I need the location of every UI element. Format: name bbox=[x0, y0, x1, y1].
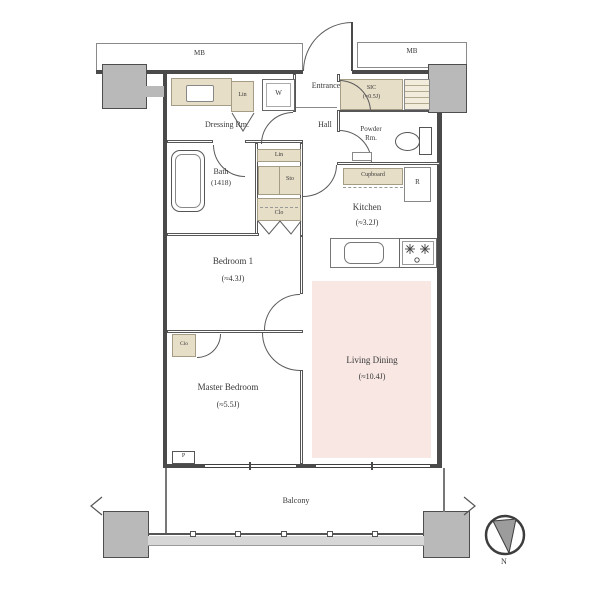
meter-box-right-label: MB bbox=[357, 48, 467, 56]
rail-post-2 bbox=[235, 531, 241, 537]
kitchen-sink bbox=[344, 242, 384, 264]
living-size: (≈10.4J) bbox=[330, 373, 414, 382]
compass-north-label: N bbox=[501, 557, 507, 566]
stove-inner bbox=[402, 241, 434, 265]
pillar-bottom-right bbox=[423, 511, 470, 558]
kitchen-size: (≈3.2J) bbox=[330, 219, 404, 228]
wall-dressing-bottom-a bbox=[167, 140, 213, 143]
powder-label: Powder bbox=[348, 126, 394, 134]
cupboard-dash-line bbox=[343, 187, 403, 188]
balcony-label: Balcony bbox=[264, 497, 328, 506]
toilet-bowl bbox=[395, 132, 420, 151]
closet-fold-door bbox=[258, 221, 301, 234]
vanity-basin bbox=[186, 85, 214, 102]
pillar-bottom-left bbox=[103, 511, 149, 558]
entrance-label: Entrance bbox=[297, 82, 355, 91]
meter-box-left-label: MB bbox=[96, 50, 303, 58]
rail-post-3 bbox=[281, 531, 287, 537]
entrance-door-leaf bbox=[351, 22, 353, 71]
kitchen-door-arc bbox=[303, 165, 337, 197]
balcony-divider-right bbox=[443, 468, 445, 512]
living-label: Living Dining bbox=[330, 356, 414, 366]
kitchen-label: Kitchen bbox=[330, 203, 404, 213]
refrigerator-label: R bbox=[404, 179, 431, 187]
floor-plan: MB MB Lin W Lin Sto bbox=[0, 0, 600, 600]
rail-post-1 bbox=[190, 531, 196, 537]
pillar-top-right bbox=[428, 64, 467, 113]
closet-hall-label: Clo bbox=[257, 210, 301, 217]
storage-label: Sto bbox=[279, 176, 301, 183]
linen-hall-label: Lin bbox=[257, 152, 301, 159]
boundary-break-left bbox=[91, 497, 102, 515]
bath-size: (1418) bbox=[194, 179, 248, 187]
powder-cabinet bbox=[352, 152, 372, 161]
window-mullion-master bbox=[249, 462, 251, 470]
balcony-divider-left bbox=[165, 468, 167, 534]
master-label: Master Bedroom bbox=[167, 383, 289, 393]
outer-wall-bottom-c bbox=[430, 464, 442, 468]
bedroom1-door-arc bbox=[264, 294, 300, 330]
outer-wall-right bbox=[437, 106, 442, 468]
cupboard-label: Cupboard bbox=[343, 172, 403, 179]
wall-bath-bottom bbox=[167, 233, 259, 236]
wall-master-right bbox=[300, 370, 303, 464]
closet-hall-rod bbox=[260, 207, 298, 208]
rail-post-5 bbox=[372, 531, 378, 537]
closet-master-label: Clo bbox=[172, 341, 196, 347]
pipe-space-label: P bbox=[172, 453, 195, 460]
dressing-label: Dressing Rm. bbox=[172, 121, 282, 130]
shoe-shelf bbox=[404, 79, 430, 110]
entrance-step-line bbox=[296, 107, 337, 108]
outer-wall-bottom-a bbox=[163, 464, 205, 468]
toilet-tank bbox=[419, 127, 432, 155]
bath-label: Bath bbox=[194, 168, 248, 177]
linen-dressing-label: Lin bbox=[231, 92, 254, 99]
bedroom1-label: Bedroom 1 bbox=[192, 257, 274, 267]
pillar-top-left bbox=[102, 64, 147, 109]
pillar-top-left-connector bbox=[146, 86, 164, 97]
balcony-rail-band bbox=[148, 536, 424, 545]
outer-wall-bottom-b bbox=[296, 464, 316, 468]
powder-label2: Rm. bbox=[348, 135, 394, 143]
balcony-rail-bottom-line bbox=[148, 545, 424, 546]
entrance-door-arc bbox=[303, 22, 352, 71]
washer-label: W bbox=[262, 90, 295, 98]
wall-bedroom1-right-a bbox=[300, 236, 303, 294]
compass: N bbox=[483, 512, 529, 566]
rail-post-4 bbox=[327, 531, 333, 537]
master-door-arc bbox=[262, 333, 300, 371]
living-dining-floor bbox=[312, 281, 431, 458]
closet-master-door-arc bbox=[197, 334, 221, 358]
outer-wall-top-right bbox=[352, 70, 437, 74]
window-mullion-living bbox=[371, 462, 373, 470]
master-size: (≈5.5J) bbox=[167, 401, 289, 410]
bedroom1-size: (≈4.3J) bbox=[192, 275, 274, 284]
hall-label: Hall bbox=[308, 121, 342, 130]
living-window bbox=[316, 464, 430, 468]
